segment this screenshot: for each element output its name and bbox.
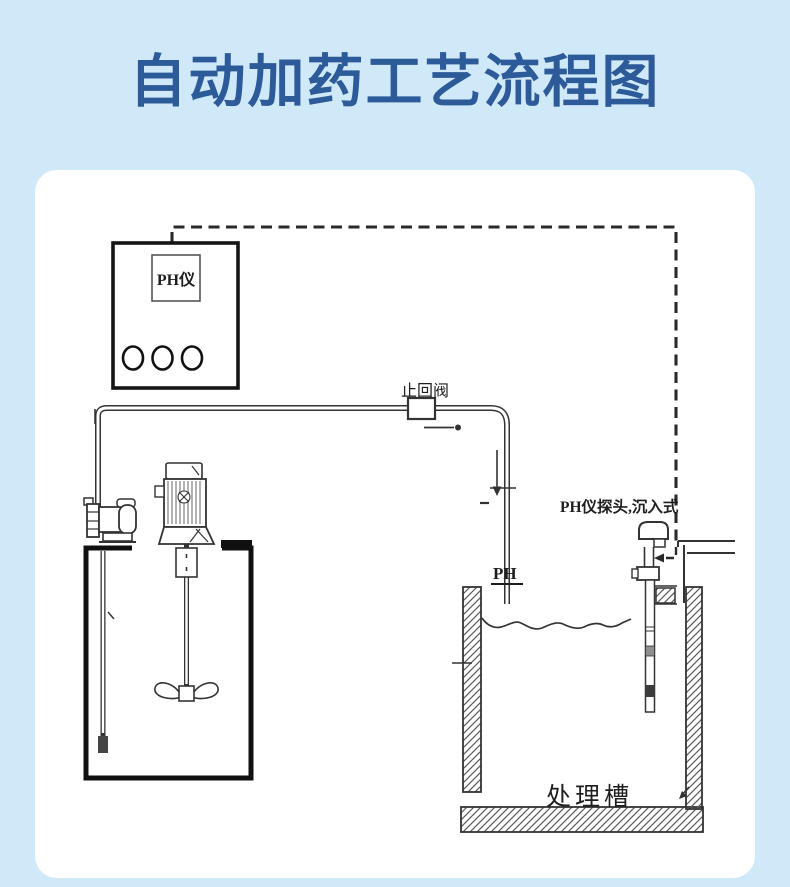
panel-knob <box>153 347 173 370</box>
dosing-tank <box>86 540 252 778</box>
foot-valve <box>98 736 108 753</box>
impeller <box>155 683 218 701</box>
flow-arrow-icon <box>424 425 461 431</box>
check-valve-label: 止回阀 <box>401 382 449 400</box>
process-flow-diagram: PH仪 <box>0 0 790 887</box>
dosing-pipe <box>95 408 507 604</box>
dosing-pump <box>84 498 136 542</box>
page-background: 自动加药工艺流程图 <box>0 0 790 887</box>
ph-point-label: PH <box>493 564 517 583</box>
mixer <box>155 463 218 701</box>
treatment-tank-label: 处理槽 <box>546 783 633 811</box>
controller-label: PH仪 <box>157 271 196 289</box>
water-line <box>482 618 631 629</box>
down-flow-arrow-icon <box>480 450 516 503</box>
probe-label: PH仪探头,沉入式 <box>560 497 679 516</box>
suction-pipe <box>98 551 114 753</box>
signal-arrow-icon <box>654 554 664 563</box>
ph-probe <box>632 522 668 712</box>
check-valve <box>408 398 435 419</box>
panel-knob <box>182 347 202 370</box>
ph-controller-panel: PH仪 <box>113 243 238 388</box>
panel-knob <box>123 347 143 370</box>
